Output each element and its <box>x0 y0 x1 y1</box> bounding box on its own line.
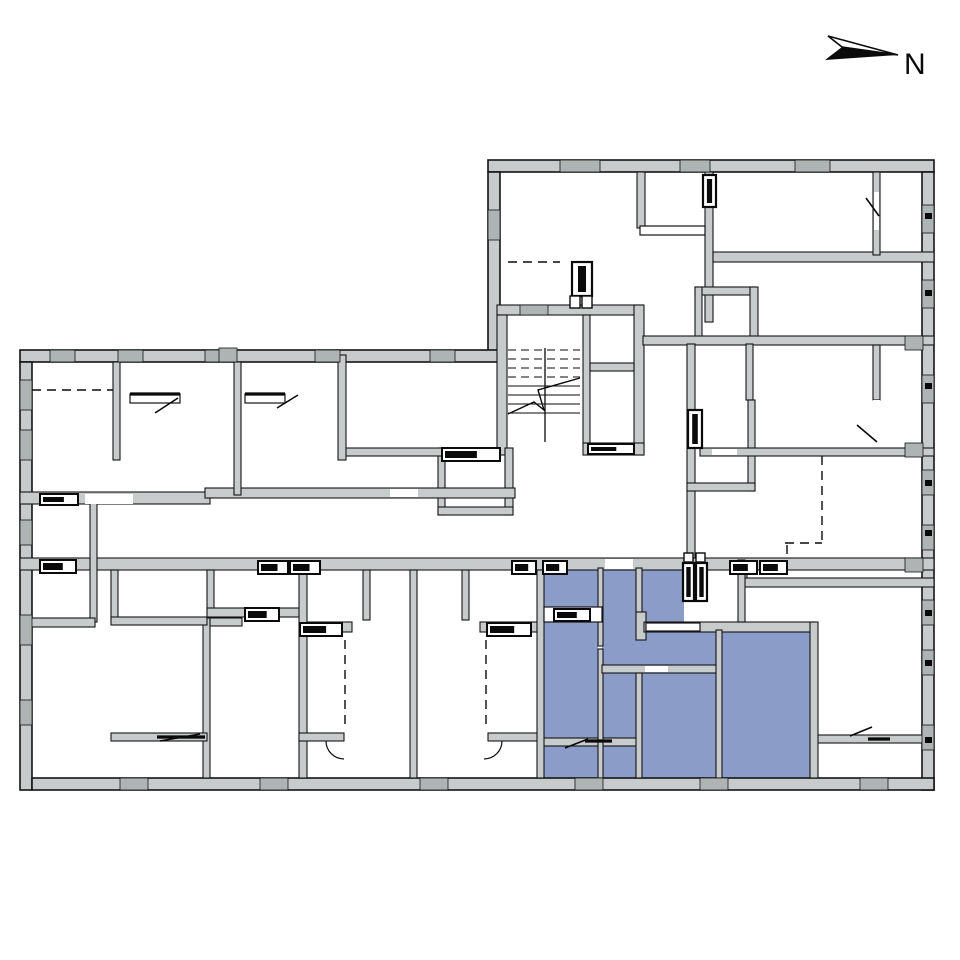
inner-wall <box>637 172 645 228</box>
floor-plan-page: N <box>0 0 960 960</box>
inner-wall <box>205 488 515 498</box>
outer-window <box>922 525 934 550</box>
inner-wall <box>462 570 469 620</box>
vent-shaft-flue <box>699 567 703 597</box>
inner-wall <box>210 618 242 626</box>
vent-shaft-flue <box>578 266 586 292</box>
door-opening <box>873 400 880 442</box>
inner-wall <box>810 622 818 778</box>
inner-wall <box>234 362 241 495</box>
framed-window-sash <box>733 564 748 571</box>
inner-wall <box>203 618 210 778</box>
outer-window <box>20 430 32 460</box>
outer-wall <box>488 160 934 172</box>
outer-window <box>520 305 548 315</box>
outer-window <box>795 160 830 172</box>
inner-wall <box>687 483 755 491</box>
inner-wall <box>111 570 118 622</box>
window-tick <box>925 610 932 616</box>
framed-window-sash <box>557 612 577 618</box>
inner-wall <box>363 570 370 620</box>
inner-wall <box>438 507 513 515</box>
window-tick <box>925 290 932 296</box>
outer-window <box>430 350 455 362</box>
inner-wall <box>410 570 417 778</box>
framed-window-sash <box>763 564 778 571</box>
highlighted-unit-room <box>544 622 598 738</box>
inner-wall <box>299 570 307 778</box>
duct-box <box>582 296 592 308</box>
framed-window-sash <box>248 611 267 618</box>
stairs <box>508 348 580 442</box>
inner-wall <box>634 305 644 455</box>
inner-wall <box>90 498 97 622</box>
duct-box <box>684 553 693 562</box>
inner-wall <box>636 673 642 778</box>
framed-window-sash <box>490 626 514 633</box>
outer-wall <box>32 778 934 790</box>
door-opening <box>390 489 418 497</box>
outer-window <box>20 700 32 725</box>
highlighted-unit[interactable] <box>544 570 810 778</box>
highlighted-unit-room <box>602 672 638 738</box>
door-opening <box>712 449 737 455</box>
outer-window <box>488 210 500 240</box>
inner-wall <box>113 362 120 460</box>
door-opening <box>85 494 133 504</box>
framed-window-sash <box>445 451 477 458</box>
outer-window <box>315 350 340 362</box>
door-opening <box>645 666 668 672</box>
window-tick <box>925 737 932 743</box>
outer-window <box>560 160 600 172</box>
outer-window <box>860 778 888 790</box>
inner-wall <box>746 344 753 400</box>
framed-window-sash <box>303 626 326 633</box>
window-tick <box>925 383 932 389</box>
outer-window <box>50 350 75 362</box>
framed-window-sash <box>43 563 63 570</box>
outer-window <box>420 778 448 790</box>
outer-window <box>20 615 32 645</box>
inner-wall <box>338 355 346 460</box>
framed-window-sash <box>591 447 616 451</box>
framed-window-sash <box>261 564 278 571</box>
framed-window-sash <box>546 564 559 571</box>
highlighted-unit-room <box>544 742 640 778</box>
outer-window <box>905 336 923 350</box>
window-tick <box>925 660 932 666</box>
duct-box <box>696 553 705 562</box>
inner-wall <box>111 617 207 625</box>
framed-window-sash <box>43 497 64 502</box>
window-tick <box>925 480 932 486</box>
inner-wall <box>20 558 934 570</box>
framed-window-sash <box>293 564 310 571</box>
north-arrow: N <box>825 36 926 81</box>
outer-wall <box>20 350 498 362</box>
vent-shaft-flue <box>707 179 712 203</box>
vent-shaft-flue <box>692 414 698 444</box>
outer-window <box>20 520 32 545</box>
floor-plan: N <box>0 0 960 960</box>
window-sill <box>640 226 705 235</box>
window-tick <box>925 530 932 536</box>
window-tick <box>925 213 932 219</box>
stair-break-line <box>508 378 580 414</box>
inner-wall <box>342 448 446 456</box>
outer-window <box>120 778 148 790</box>
inner-wall <box>687 344 695 560</box>
inner-wall <box>590 363 634 371</box>
inner-wall <box>695 287 755 295</box>
door-opening <box>605 559 633 569</box>
outer-window <box>118 350 143 362</box>
inner-wall <box>716 630 722 778</box>
door-swing-arc <box>484 741 502 759</box>
outer-window <box>260 778 288 790</box>
inner-wall <box>505 448 513 515</box>
framed-window-sash <box>515 564 528 571</box>
inner-wall <box>497 315 507 455</box>
inner-wall <box>713 252 934 262</box>
outer-window <box>575 778 603 790</box>
outer-wall <box>20 362 32 790</box>
vent-shaft-flue <box>686 567 690 597</box>
inner-wall <box>636 568 642 614</box>
outer-window <box>219 348 237 362</box>
outer-window <box>905 443 923 457</box>
outer-window <box>700 778 728 790</box>
window-sill <box>646 623 700 631</box>
outer-window <box>20 380 32 410</box>
north-label: N <box>904 48 926 81</box>
duct-box <box>570 296 580 308</box>
outer-window <box>905 558 923 572</box>
highlighted-unit-room <box>722 630 810 778</box>
inner-wall <box>748 400 755 491</box>
inner-wall <box>299 733 344 741</box>
inner-wall <box>30 618 95 627</box>
inner-wall <box>488 733 538 741</box>
highlighted-unit-room <box>642 672 716 778</box>
inner-wall <box>537 570 544 778</box>
door-swing-arc <box>326 741 344 759</box>
outer-window <box>680 160 710 172</box>
inner-wall <box>873 345 880 400</box>
inner-wall <box>744 578 934 587</box>
inner-wall <box>583 315 590 445</box>
